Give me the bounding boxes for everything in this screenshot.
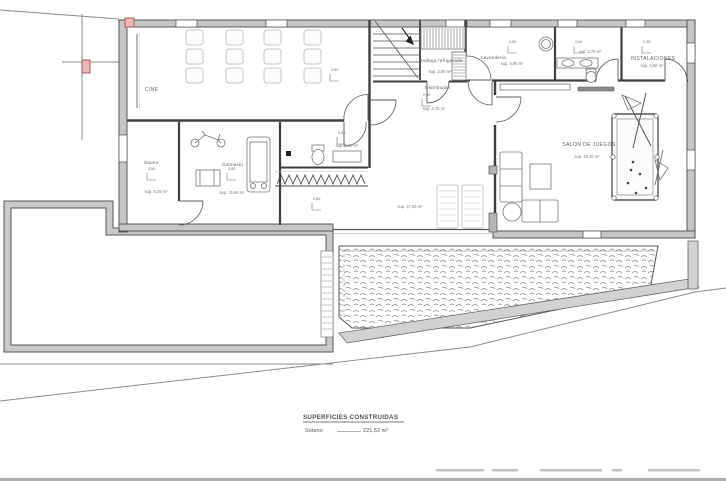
area-central: sup. 47,06 m² <box>397 204 423 209</box>
interior-walls <box>127 20 688 231</box>
dim-cine: 2,60 <box>331 68 338 72</box>
dim-instalaciones: 2,35 <box>643 40 650 44</box>
coat-rack <box>275 172 368 187</box>
room-label-cine: CINE <box>145 87 159 93</box>
sheet-bottom-rule <box>0 478 726 481</box>
area-salon: sup. 45,40 m² <box>574 154 600 159</box>
stair-direction-arrow <box>406 36 415 46</box>
summary-sotano-label: Sótano <box>305 428 323 434</box>
room-label-instalaciones: INSTALACIONES <box>631 56 676 62</box>
staircase <box>373 21 420 78</box>
dim-gimnasio: 2,60 <box>228 167 235 171</box>
dim-distribuidor: 2,60 <box>423 93 430 97</box>
room-label-distribuidor: Distribuidor <box>425 85 451 90</box>
title-block-greeked-text <box>436 469 700 472</box>
floor-plan-drawing: CINE Sauna Gimnasio Bodega refrigerado D… <box>0 0 726 485</box>
cinema-seats <box>137 30 321 108</box>
laundry-machine <box>539 37 553 51</box>
dim-sauna: 2,60 <box>148 167 155 171</box>
sofa-set <box>500 152 558 222</box>
dim-vestuario: 2,60 <box>338 131 345 135</box>
surface-summary: SUPERFICIES CONSTRUIDAS Sótano 221,52 m² <box>303 414 404 434</box>
floor-drain <box>286 151 291 156</box>
room-label-lavanderia: Lavandería <box>481 55 506 60</box>
wc-fixtures <box>557 58 598 83</box>
sun-loungers <box>437 185 483 228</box>
area-distribuidor: sup. 3,75 m² <box>423 106 446 111</box>
summary-title: SUPERFICIES CONSTRUIDAS <box>303 414 398 421</box>
glazed-edge <box>333 230 493 234</box>
area-instalaciones: sup. 5,50 m² <box>641 63 664 68</box>
room-label-sauna: Sauna <box>144 160 159 165</box>
area-bodega: sup. 3,50 m² <box>429 69 452 74</box>
floor-plan-sheet: CINE Sauna Gimnasio Bodega refrigerado D… <box>0 0 726 485</box>
sideboard <box>500 84 614 91</box>
area-lavanderia: sup. 4,90 m² <box>501 61 524 66</box>
pool-table <box>611 93 668 200</box>
area-sauna: sup. 5,25 m² <box>145 189 168 194</box>
room-label-salon: SALON DE JUEGOS <box>562 142 615 148</box>
dim-central: 2,60 <box>313 197 320 201</box>
dim-lavanderia: 2,60 <box>509 40 516 44</box>
dim-aseo: 2,60 <box>575 40 582 44</box>
area-gimnasio: sup. 15,86 m² <box>219 190 245 195</box>
basin-stair-strip <box>321 251 333 337</box>
summary-sotano-value: 221,52 m² <box>363 428 388 434</box>
room-label-bodega: Bodega refrigerado <box>420 58 463 63</box>
